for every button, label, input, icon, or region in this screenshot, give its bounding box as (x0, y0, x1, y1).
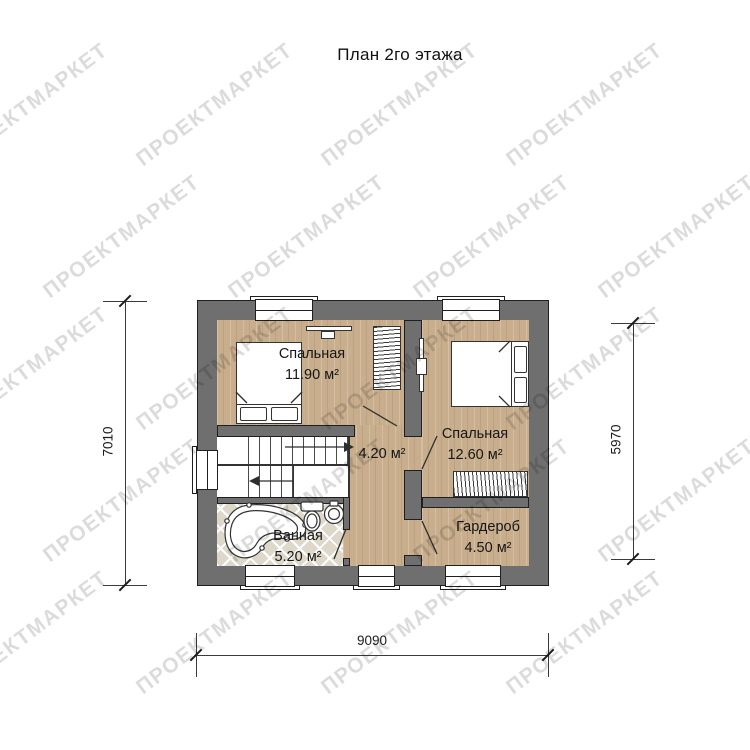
stair-arrow-head (249, 476, 259, 486)
room-label-bedroom1: Спальная 11.90 м² (248, 344, 376, 386)
room-name: Гардероб (430, 517, 546, 538)
blanket-fold (499, 396, 510, 407)
dim-label: 9090 (332, 633, 412, 648)
dim-line (196, 655, 548, 656)
room-name: Спальная (248, 344, 376, 365)
room-area: 4.20 м² (340, 444, 424, 465)
dim-label: 7010 (101, 412, 116, 472)
room-area: 4.50 м² (430, 538, 546, 559)
room-label-wardrobe: Гардероб 4.50 м² (430, 517, 546, 559)
dim-label: 5970 (609, 410, 624, 470)
room-area: 12.60 м² (418, 445, 532, 466)
room-label-bathroom: Ванная 5.20 м² (248, 526, 348, 568)
blanket-fold (499, 341, 510, 352)
room-label-bedroom2: Спальная 12.60 м² (418, 424, 532, 466)
room-area: 11.90 м² (248, 365, 376, 386)
blanket-fold (236, 392, 247, 403)
room-name: Спальная (418, 424, 532, 445)
door-line-bedroom1 (363, 406, 397, 426)
room-name: Ванная (248, 526, 348, 547)
dim-line (125, 301, 126, 586)
blanket-fold (291, 392, 302, 403)
room-area: 5.20 м² (248, 547, 348, 568)
dim-line (633, 323, 634, 560)
room-label-hall: 4.20 м² (340, 444, 424, 465)
